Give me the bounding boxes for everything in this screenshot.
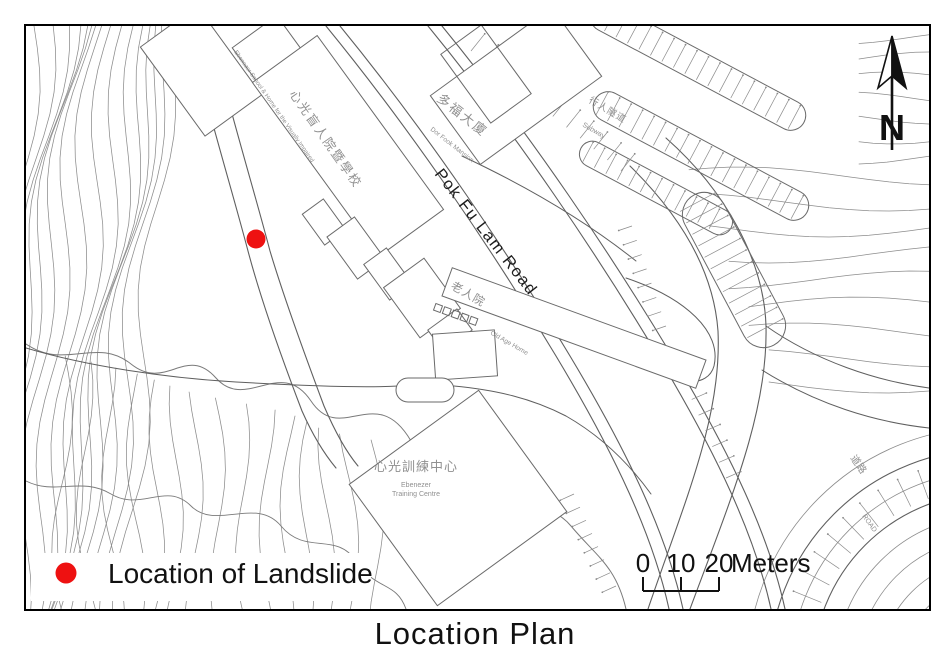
legend: Location of Landslide: [31, 553, 373, 601]
label-pok-fu-lam-road: Pok Fu Lam Road: [431, 165, 541, 299]
map-canvas: Ebenezer School & Home for the Visually …: [26, 26, 929, 609]
label-road-side-en: ROAD: [860, 513, 877, 534]
scale-tick-20: 20: [705, 548, 734, 578]
legend-label: Location of Landslide: [108, 558, 373, 589]
legend-marker-icon: [56, 563, 77, 584]
landslide-marker-icon: [247, 230, 266, 249]
label-subway-en: Subway: [581, 122, 606, 141]
map-frame: Ebenezer School & Home for the Visually …: [24, 24, 931, 611]
plan-title: Location Plan: [0, 616, 950, 652]
label-training-centre-en1: Ebenezer: [401, 482, 432, 489]
scale-unit: Meters: [731, 548, 810, 578]
label-training-centre-en2: Training Centre: [392, 491, 440, 498]
label-training-centre-zh: 心光訓練中心: [374, 459, 458, 474]
scale-tick-10: 10: [667, 548, 696, 578]
north-arrow-letter: N: [879, 107, 905, 148]
location-plan-figure: Ebenezer School & Home for the Visually …: [0, 0, 950, 663]
label-road-side-zh: 道路: [848, 452, 870, 476]
scale-tick-0: 0: [636, 548, 650, 578]
